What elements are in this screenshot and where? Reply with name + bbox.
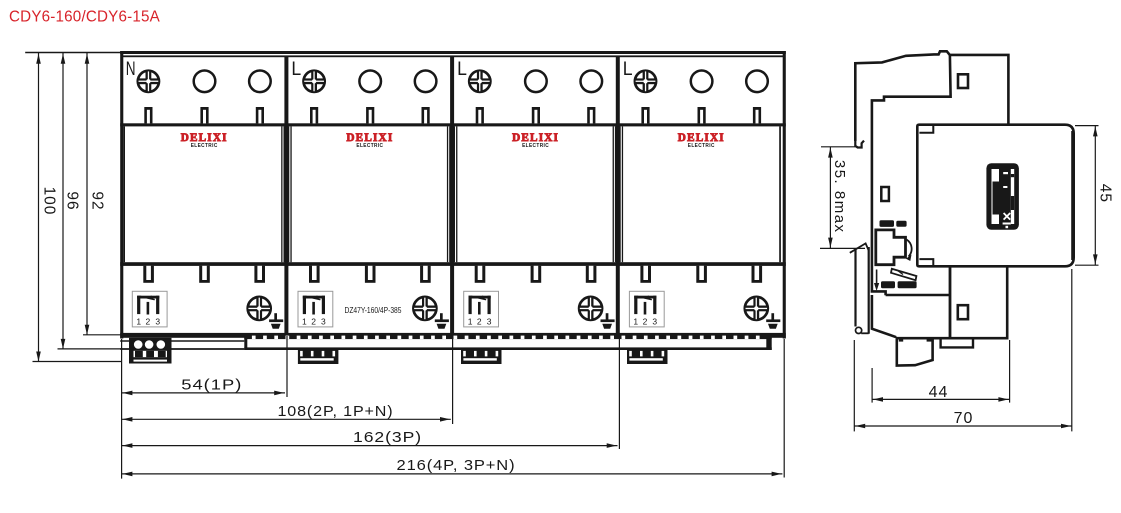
svg-text:1: 1 bbox=[633, 316, 638, 326]
svg-text:1: 1 bbox=[468, 316, 473, 326]
svg-text:2: 2 bbox=[311, 316, 316, 326]
svg-text:92: 92 bbox=[88, 191, 105, 210]
svg-text:35. 8max: 35. 8max bbox=[831, 160, 848, 234]
svg-text:CDY6-160/CDY6-15A: CDY6-160/CDY6-15A bbox=[9, 8, 160, 25]
svg-text:ELECTRIC: ELECTRIC bbox=[191, 143, 218, 149]
svg-text:2: 2 bbox=[146, 316, 151, 326]
svg-text:N: N bbox=[126, 59, 136, 80]
svg-text:L: L bbox=[623, 59, 633, 80]
svg-text:100: 100 bbox=[40, 187, 57, 216]
svg-text:3: 3 bbox=[321, 316, 326, 326]
svg-text:44: 44 bbox=[929, 384, 949, 401]
svg-text:54(1P): 54(1P) bbox=[181, 377, 242, 394]
svg-text:L: L bbox=[291, 59, 301, 80]
svg-text:ELECTRIC: ELECTRIC bbox=[522, 143, 549, 149]
svg-text:ELECTRIC: ELECTRIC bbox=[356, 143, 383, 149]
svg-text:2: 2 bbox=[477, 316, 482, 326]
svg-text:3: 3 bbox=[487, 316, 492, 326]
svg-text:1: 1 bbox=[136, 316, 141, 326]
svg-text:162(3P): 162(3P) bbox=[353, 429, 422, 446]
svg-text:216(4P, 3P+N): 216(4P, 3P+N) bbox=[397, 457, 516, 474]
svg-text:70: 70 bbox=[954, 410, 974, 427]
svg-text:ELECTRIC: ELECTRIC bbox=[688, 143, 715, 149]
svg-text:DZ47Y-160/4P-385: DZ47Y-160/4P-385 bbox=[345, 305, 402, 315]
svg-text:3: 3 bbox=[155, 316, 160, 326]
svg-text:45: 45 bbox=[1097, 184, 1114, 203]
svg-text:108(2P, 1P+N): 108(2P, 1P+N) bbox=[278, 403, 394, 420]
svg-text:3: 3 bbox=[652, 316, 657, 326]
svg-text:1: 1 bbox=[302, 316, 307, 326]
svg-text:2: 2 bbox=[643, 316, 648, 326]
svg-text:L: L bbox=[457, 59, 467, 80]
svg-text:96: 96 bbox=[64, 191, 81, 210]
